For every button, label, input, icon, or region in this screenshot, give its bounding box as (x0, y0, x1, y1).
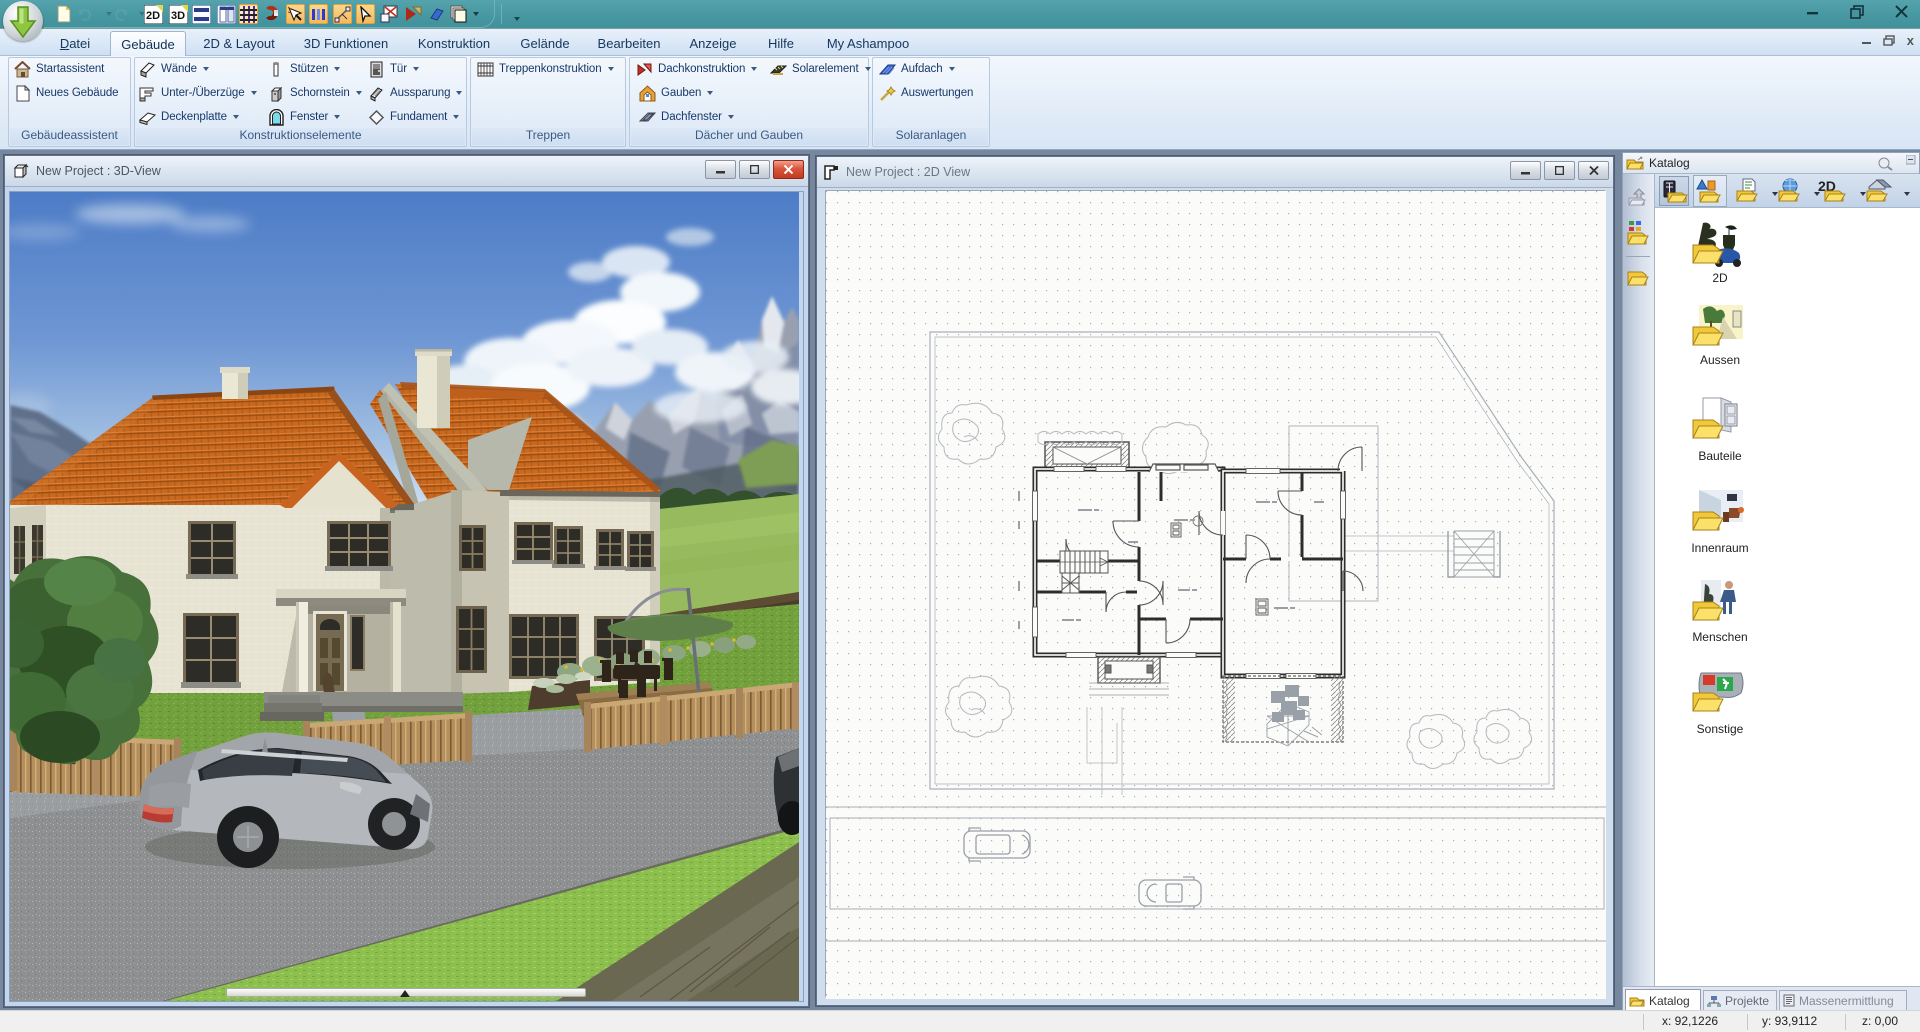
svg-text:3D: 3D (171, 10, 185, 22)
svg-text:2D: 2D (146, 10, 160, 22)
